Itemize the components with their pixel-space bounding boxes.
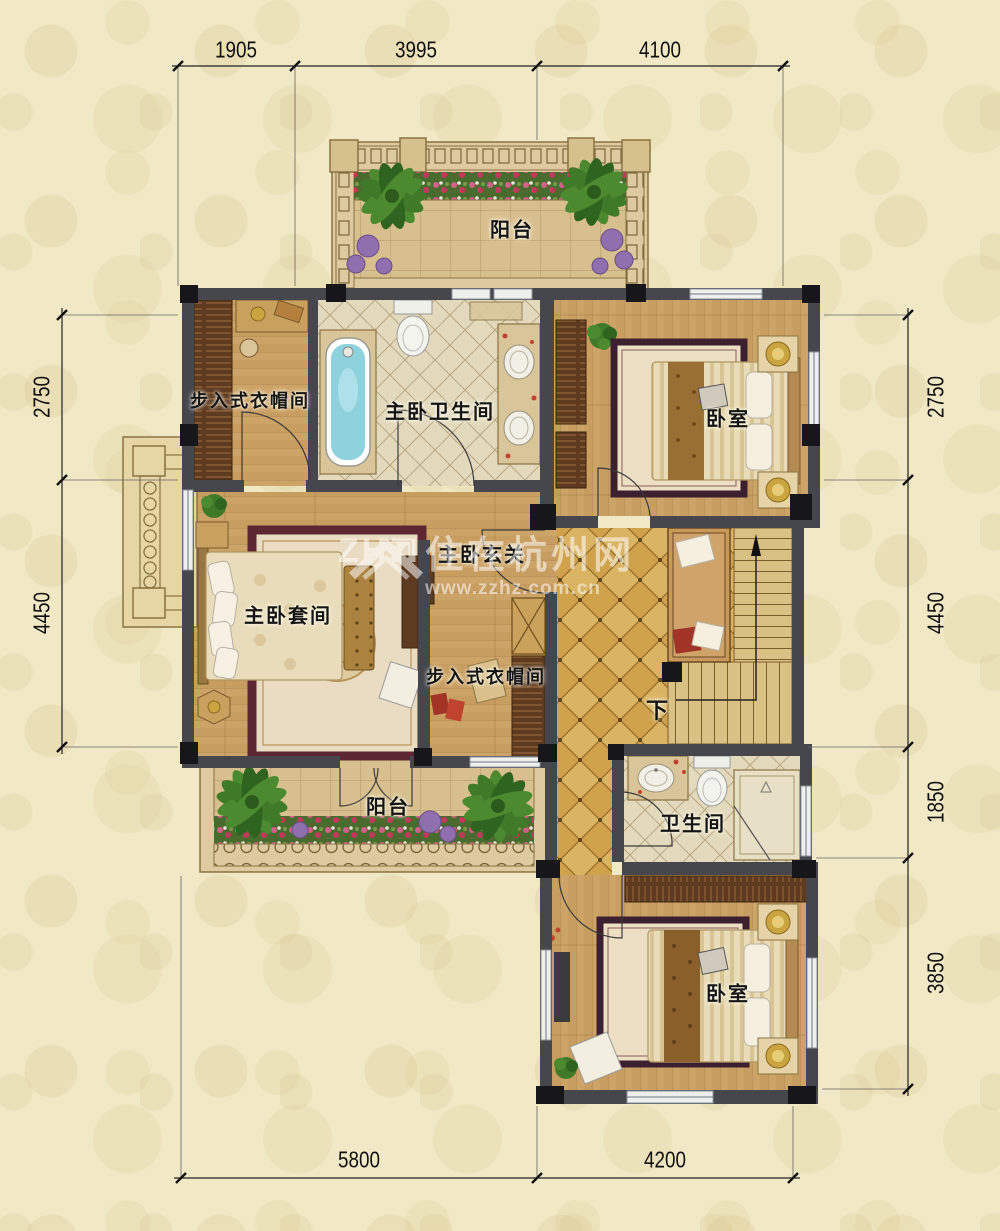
shelf xyxy=(470,302,522,320)
dim-top-1: 1905 xyxy=(215,37,257,64)
room-label-walkin-closet-lower: 步入式衣帽间 xyxy=(426,663,546,689)
bed-runner xyxy=(668,362,704,480)
room-label-master-foyer: 主卧玄关 xyxy=(438,539,526,568)
dim-right-3: 1850 xyxy=(923,781,950,823)
room-label-balcony-top: 阳台 xyxy=(490,214,534,243)
nightstand xyxy=(196,522,228,548)
balustrade-post xyxy=(330,140,358,172)
dim-right-4: 3850 xyxy=(923,952,950,994)
dim-left-2: 4450 xyxy=(29,592,56,634)
dim-top-2: 3995 xyxy=(395,37,437,64)
room-label-master-suite: 主卧套间 xyxy=(244,600,332,629)
toilet xyxy=(697,770,727,806)
balustrade-post xyxy=(400,138,426,172)
balustrade-post xyxy=(622,140,650,172)
headboard xyxy=(788,358,800,484)
room-label-bedroom-top: 卧室 xyxy=(706,403,750,432)
toilet-tank xyxy=(694,756,730,768)
room-label-bath: 卫生间 xyxy=(660,808,726,837)
toilet xyxy=(397,316,429,356)
dim-right-1: 2750 xyxy=(923,376,950,418)
floor-plan-canvas: 1905 3995 4100 5800 4200 2750 4450 2750 … xyxy=(0,0,1000,1231)
room-label-bedroom-bottom: 卧室 xyxy=(706,978,750,1007)
tv-cabinet xyxy=(556,320,586,424)
room-label-balcony-lower: 阳台 xyxy=(366,791,410,820)
tv-panel xyxy=(554,952,570,1022)
pillow xyxy=(692,621,724,650)
floor-plan-drawing xyxy=(0,0,1000,1231)
stair-treads xyxy=(734,528,792,662)
staircase xyxy=(668,528,792,744)
label-stairs-down: 下 xyxy=(646,693,670,725)
dim-top-3: 4100 xyxy=(639,37,681,64)
corridor-tile-floor xyxy=(557,744,612,875)
dresser xyxy=(402,556,418,648)
balustrade xyxy=(214,844,534,866)
cabinet xyxy=(556,432,586,488)
dim-bottom-1: 5800 xyxy=(338,1147,380,1174)
balcony-door-panel xyxy=(452,289,490,299)
stool xyxy=(240,339,258,357)
bed-runner xyxy=(664,930,700,1062)
decor xyxy=(698,948,728,975)
dim-right-2: 4450 xyxy=(923,592,950,634)
room-label-walkin-closet-top: 步入式衣帽间 xyxy=(190,387,310,413)
balcony-door-panel xyxy=(494,289,532,299)
bed-bench xyxy=(344,566,374,670)
wardrobe xyxy=(625,876,807,902)
room-label-master-bath: 主卧卫生间 xyxy=(385,396,495,425)
toilet-tank xyxy=(394,300,432,314)
stair-winders xyxy=(668,662,792,744)
dim-left-1: 2750 xyxy=(29,376,56,418)
dim-bottom-2: 4200 xyxy=(644,1147,686,1174)
